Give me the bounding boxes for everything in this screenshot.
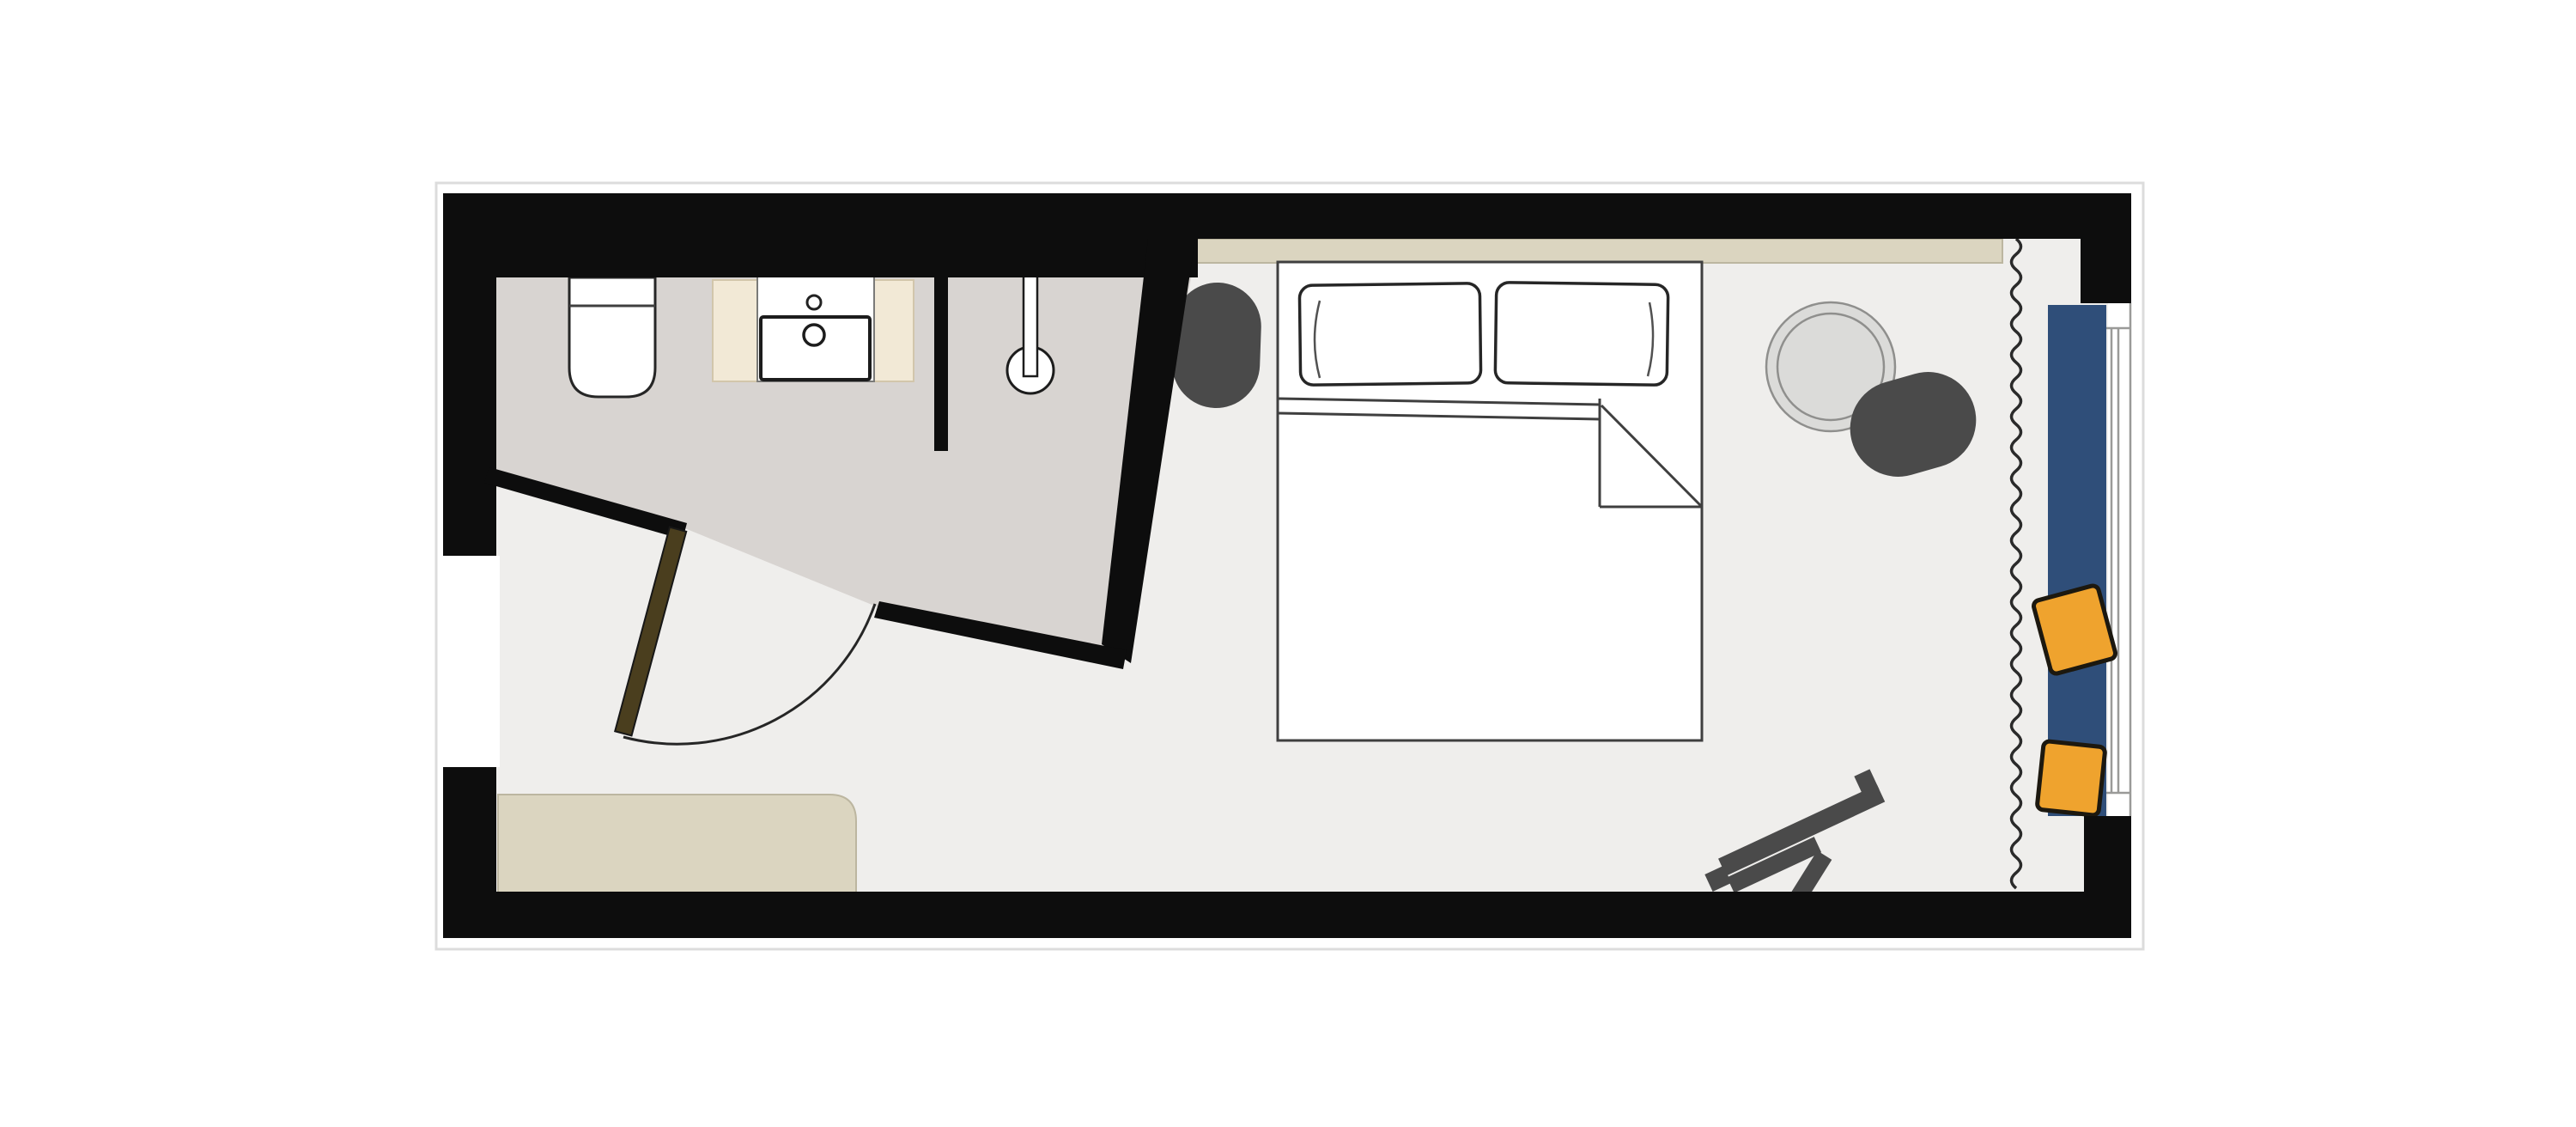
wall-left-upper <box>443 193 496 556</box>
wall-top-bathroom <box>496 193 1198 277</box>
entry-bench <box>498 795 856 893</box>
entry-opening <box>443 556 500 767</box>
sink-drain-icon <box>804 325 824 345</box>
floor-plan: Hotel guest room floor plan <box>0 0 2576 1127</box>
wall-shower-partition <box>934 239 948 451</box>
pillow-right <box>1495 283 1668 386</box>
toilet <box>569 277 655 397</box>
pillow-left <box>1299 283 1480 386</box>
wall-right-pier-top <box>2081 193 2131 303</box>
wall-bottom <box>443 892 2131 938</box>
headboard-ledge <box>1178 239 2002 263</box>
window-seat-daybed <box>2048 305 2106 816</box>
faucet-icon <box>807 295 821 309</box>
double-bed <box>1278 262 1702 740</box>
seat-cushion-bottom <box>2037 740 2105 815</box>
wall-right-pier-bottom <box>2084 816 2131 938</box>
floor-plan-page: Hotel guest room floor plan <box>0 0 2576 1127</box>
